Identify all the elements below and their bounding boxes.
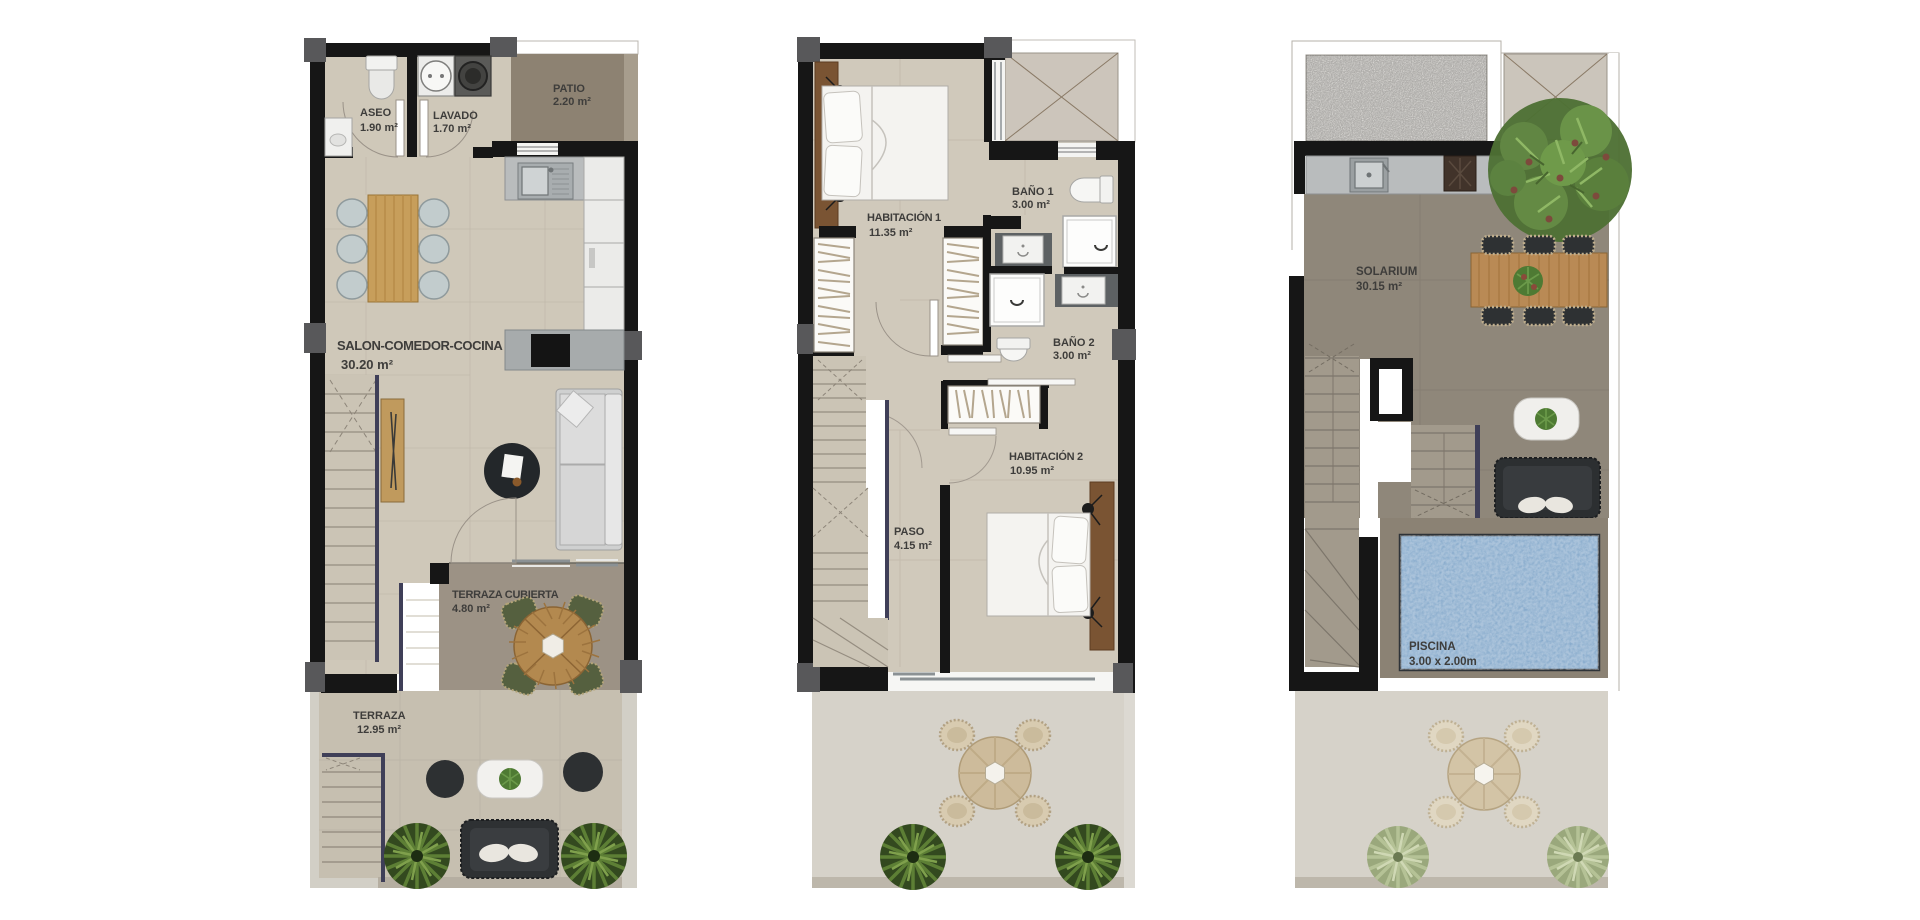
svg-text:SOLARIUM: SOLARIUM bbox=[1356, 266, 1417, 278]
svg-text:ASEO: ASEO bbox=[360, 107, 392, 119]
svg-text:PATIO: PATIO bbox=[553, 83, 585, 95]
svg-text:LAVADO: LAVADO bbox=[433, 110, 478, 122]
svg-text:30.15 m²: 30.15 m² bbox=[1356, 281, 1402, 293]
svg-text:BAÑO 1: BAÑO 1 bbox=[1012, 185, 1054, 198]
svg-text:4.15 m²: 4.15 m² bbox=[894, 540, 932, 552]
svg-text:HABITACIÓN 2: HABITACIÓN 2 bbox=[1009, 450, 1083, 463]
svg-text:11.35 m²: 11.35 m² bbox=[869, 227, 913, 239]
svg-text:PASO: PASO bbox=[894, 526, 925, 538]
svg-text:3.00 m²: 3.00 m² bbox=[1012, 199, 1050, 211]
svg-text:TERRAZA: TERRAZA bbox=[353, 710, 406, 722]
svg-text:4.80 m²: 4.80 m² bbox=[452, 603, 490, 615]
svg-text:TERRAZA CUBIERTA: TERRAZA CUBIERTA bbox=[452, 589, 559, 601]
svg-text:12.95 m²: 12.95 m² bbox=[357, 724, 401, 736]
svg-text:3.00 m²: 3.00 m² bbox=[1053, 350, 1091, 362]
svg-text:1.70 m²: 1.70 m² bbox=[433, 123, 471, 135]
svg-text:10.95 m²: 10.95 m² bbox=[1010, 465, 1054, 477]
svg-text:BAÑO 2: BAÑO 2 bbox=[1053, 336, 1095, 349]
svg-text:PISCINA: PISCINA bbox=[1409, 641, 1456, 653]
svg-text:HABITACIÓN 1: HABITACIÓN 1 bbox=[867, 211, 941, 224]
svg-text:2.20 m²: 2.20 m² bbox=[553, 96, 591, 108]
svg-text:30.20 m²: 30.20 m² bbox=[341, 357, 394, 372]
svg-text:3.00 x 2.00m: 3.00 x 2.00m bbox=[1409, 656, 1477, 668]
svg-text:1.90 m²: 1.90 m² bbox=[360, 122, 398, 134]
svg-text:SALON-COMEDOR-COCINA: SALON-COMEDOR-COCINA bbox=[337, 338, 503, 353]
